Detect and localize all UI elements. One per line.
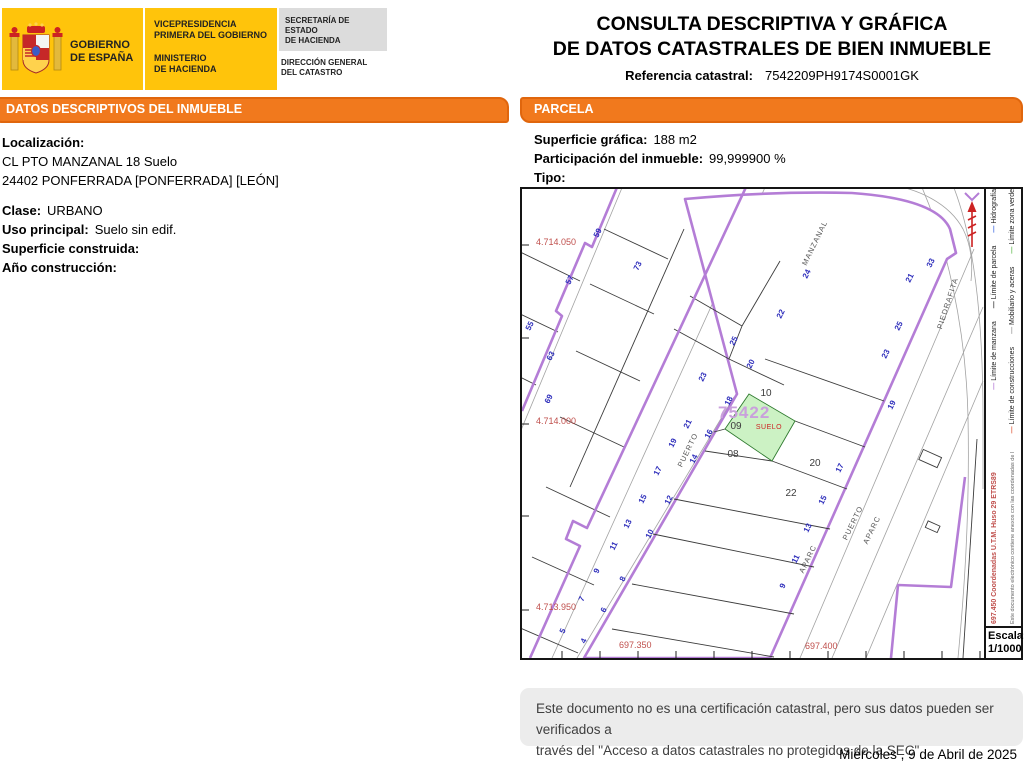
map-label: 09 — [730, 421, 742, 432]
map-label: 08 — [727, 449, 739, 460]
map-label: PUERTO — [841, 504, 865, 541]
map-label: 57 — [564, 273, 576, 285]
superficie-construida-label: Superficie construida: — [2, 241, 139, 256]
map-label: 55 — [524, 319, 536, 331]
map-label: 697.400 — [805, 641, 838, 651]
title-line-1: CONSULTA DESCRIPTIVA Y GRÁFICA — [530, 12, 1014, 37]
cadastral-certificate-page: { "header": { "gobierno": "GOBIERNO\nDE … — [0, 0, 1024, 768]
clase-row: Clase:URBANO — [2, 201, 279, 220]
localizacion-label: Localización: — [2, 133, 279, 152]
referencia-value: 7542209PH9174S0001GK — [765, 68, 919, 83]
clase-label: Clase: — [2, 203, 41, 218]
uso-label: Uso principal: — [2, 222, 89, 237]
map-label: 5 — [558, 626, 568, 634]
uso-value: Suelo sin edif. — [95, 222, 177, 237]
map-label: 4 — [579, 636, 589, 644]
map-label: 75422 — [718, 403, 770, 422]
superficie-grafica-label: Superficie gráfica: — [534, 132, 647, 147]
direccion-line2: 24402 PONFERRADA [PONFERRADA] [LEÓN] — [2, 171, 279, 190]
map-label: 20 — [809, 458, 821, 469]
document-title: CONSULTA DESCRIPTIVA Y GRÁFICA DE DATOS … — [530, 12, 1014, 62]
superficie-grafica-row: Superficie gráfica:188 m2 — [534, 130, 786, 149]
map-label: 11 — [608, 540, 620, 552]
legend-swatch-hidrografia: — — [991, 226, 998, 233]
map-label: 7 — [577, 594, 587, 602]
participacion-row: Participación del inmueble:99,999900 % — [534, 149, 786, 168]
referencia-label: Referencia catastral: — [625, 68, 753, 83]
map-label: 22 — [785, 488, 797, 499]
legend-swatch-construcciones: — — [1009, 426, 1016, 433]
legend-item-mobiliario: — Mobiliario y aceras — [1009, 267, 1016, 334]
participacion-label: Participación del inmueble: — [534, 151, 703, 166]
map-label: 4.713.950 — [536, 602, 576, 612]
legend-swatch-manzana: — — [991, 383, 998, 390]
logo-ministerio-block: VICEPRESIDENCIA PRIMERA DEL GOBIERNO MIN… — [145, 8, 277, 90]
title-line-2: DE DATOS CATASTRALES DE BIEN INMUEBLE — [530, 37, 1014, 62]
legend-swatch-mobiliario: — — [1009, 327, 1016, 334]
secretaria-estado-label: SECRETARÍA DE ESTADO DE HACIENDA — [279, 8, 387, 51]
electronic-document-note: Este documento electrónico contiene anex… — [1010, 452, 1016, 624]
map-label: 19 — [886, 398, 898, 410]
tipo-row: Tipo: — [534, 168, 786, 187]
map-label: 13 — [622, 517, 634, 529]
boundary-right-block — [891, 477, 965, 658]
section-header-parcela: PARCELA — [520, 97, 1023, 123]
spain-coat-of-arms-icon — [8, 20, 64, 82]
map-label: 19 — [667, 436, 679, 448]
referencia-catastral: Referencia catastral:7542209PH9174S0001G… — [530, 68, 1014, 83]
map-label: 59 — [592, 226, 604, 238]
map-label: APARC — [861, 514, 882, 545]
scale-box: Escala: 1/1000 — [986, 626, 1021, 658]
datos-descriptivos-panel: Localización: CL PTO MANZANAL 18 Suelo 2… — [2, 133, 279, 277]
superficie-grafica-value: 188 m2 — [653, 132, 696, 147]
legend-item-hidrografia: — Hidrografía — [991, 189, 998, 233]
logo-gobierno-block: GOBIERNO DE ESPAÑA — [2, 8, 143, 90]
participacion-value: 99,999900 % — [709, 151, 786, 166]
document-date: Miércoles , 9 de Abril de 2025 — [520, 747, 1017, 762]
legend-row-2: Este documento electrónico contiene anex… — [1005, 189, 1020, 624]
map-label: 73 — [632, 259, 644, 271]
gobierno-espana-label: GOBIERNO DE ESPAÑA — [70, 39, 142, 65]
utm-coordinates-note: 697.450 Coordenadas U.T.M. Huso 29 ETRS8… — [991, 472, 998, 624]
map-label: 15 — [637, 492, 649, 504]
anio-construccion-label: Año construcción: — [2, 260, 117, 275]
map-label: 4.714.050 — [536, 237, 576, 247]
cadastral-map-frame: 5557596369735791113151719214681012141618… — [520, 187, 1023, 660]
anio-row: Año construcción: — [2, 258, 279, 277]
tipo-label: Tipo: — [534, 170, 566, 185]
map-label: 17 — [652, 464, 664, 476]
legend-item-limite-construcciones: — Límite de construcciones — [1009, 347, 1016, 433]
map-label: SUELO — [756, 424, 782, 431]
map-label: 9 — [592, 566, 602, 574]
clase-value: URBANO — [47, 203, 103, 218]
direccion-line1: CL PTO MANZANAL 18 Suelo — [2, 152, 279, 171]
scale-label: Escala: — [988, 630, 1021, 643]
superficie-row: Superficie construida: — [2, 239, 279, 258]
map-legend-sidebar: 697.450 Coordenadas U.T.M. Huso 29 ETRS8… — [984, 189, 1021, 658]
legend-row-1: 697.450 Coordenadas U.T.M. Huso 29 ETRS8… — [987, 189, 1002, 624]
vicepresidencia-label: VICEPRESIDENCIA PRIMERA DEL GOBIERNO — [154, 19, 268, 41]
legend-swatch-parcela: — — [991, 301, 998, 308]
legend-item-limite-parcela: — Límite de parcela — [991, 246, 998, 309]
disclaimer-line1: Este documento no es una certificación c… — [536, 698, 1007, 740]
map-legend: 697.450 Coordenadas U.T.M. Huso 29 ETRS8… — [987, 189, 1020, 624]
cadastral-map: 5557596369735791113151719214681012141618… — [522, 189, 984, 658]
map-label: 69 — [543, 392, 555, 404]
disclaimer-box: Este documento no es una certificación c… — [520, 688, 1023, 746]
direccion-general-catastro-label: DIRECCIÓN GENERAL DEL CATASTRO — [281, 58, 387, 78]
section-header-datos-descriptivos: DATOS DESCRIPTIVOS DEL INMUEBLE — [0, 97, 509, 123]
boundary-left-zigzag — [522, 189, 618, 411]
map-label: 21 — [682, 417, 694, 429]
map-label: 10 — [760, 388, 772, 399]
legend-swatch-zona-verde: — — [1009, 247, 1016, 254]
ministerio-label: MINISTERIO DE HACIENDA — [154, 53, 268, 75]
parcela-panel: Superficie gráfica:188 m2 Participación … — [534, 130, 786, 187]
scale-value: 1/1000 — [988, 643, 1021, 656]
uso-row: Uso principal:Suelo sin edif. — [2, 220, 279, 239]
map-label: 23 — [697, 370, 709, 382]
legend-item-zona-verde: — Límite zona verde — [1009, 189, 1016, 254]
legend-item-limite-manzana: — Límite de manzana — [991, 321, 998, 390]
map-label: 4.714.000 — [536, 416, 576, 426]
map-label: 697.350 — [619, 640, 652, 650]
